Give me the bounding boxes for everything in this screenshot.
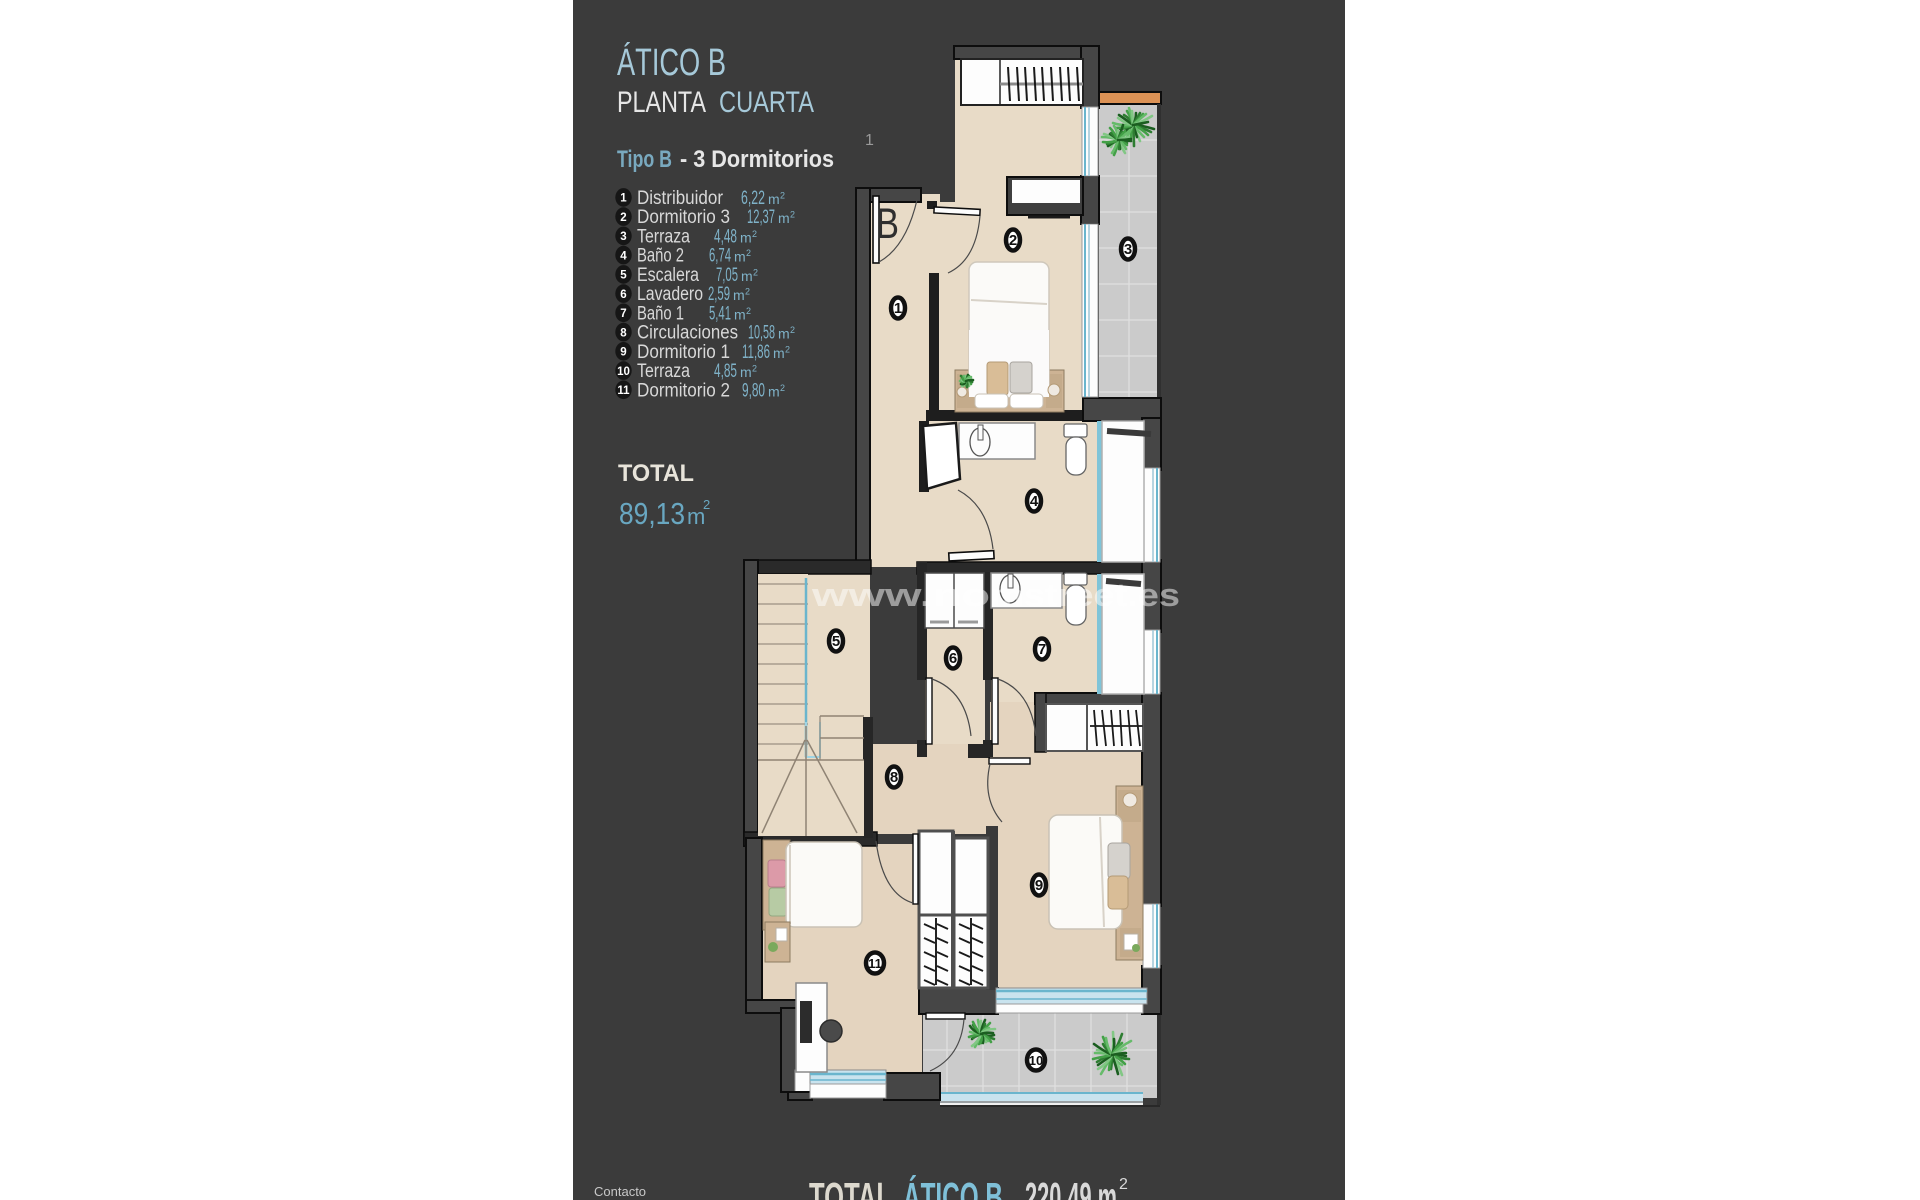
svg-text:11: 11	[617, 385, 630, 397]
svg-text:m: m	[733, 287, 745, 303]
svg-text:m: m	[768, 383, 780, 399]
svg-text:TOTAL: TOTAL	[618, 460, 694, 487]
svg-text:Contacto: Contacto	[594, 1184, 646, 1199]
svg-text:6: 6	[949, 650, 957, 667]
svg-text:m: m	[778, 210, 790, 226]
svg-text:4: 4	[1030, 493, 1039, 510]
svg-text:5: 5	[832, 633, 840, 650]
svg-text:6: 6	[620, 289, 626, 301]
svg-text:7: 7	[1038, 641, 1046, 658]
svg-text:B: B	[876, 200, 899, 248]
svg-text:m: m	[778, 326, 790, 342]
svg-text:Distribuidor: Distribuidor	[637, 188, 724, 209]
svg-text:3: 3	[620, 231, 626, 243]
svg-text:CUARTA: CUARTA	[719, 86, 814, 119]
svg-text:Circulaciones: Circulaciones	[637, 323, 738, 344]
svg-text:2: 2	[1119, 1176, 1128, 1193]
svg-text:2: 2	[780, 383, 785, 393]
svg-text:- 3 Dormitorios: - 3 Dormitorios	[680, 146, 834, 173]
svg-text:2: 2	[1009, 232, 1017, 249]
svg-text:2: 2	[746, 306, 751, 316]
svg-text:m: m	[740, 229, 752, 245]
svg-text:m: m	[773, 345, 785, 361]
svg-text:2: 2	[753, 267, 758, 277]
svg-text:www.no: www.no	[811, 577, 990, 613]
svg-text:220,49 m: 220,49 m	[1025, 1174, 1117, 1200]
svg-text:mstreet.es: mstreet.es	[990, 577, 1180, 613]
svg-text:2: 2	[785, 344, 790, 354]
svg-text:5: 5	[620, 270, 627, 282]
svg-text:10: 10	[617, 366, 630, 378]
svg-text:Tipo B: Tipo B	[617, 146, 672, 173]
svg-text:4: 4	[620, 250, 627, 262]
svg-text:Terraza: Terraza	[637, 226, 690, 247]
svg-text:TOTAL: TOTAL	[809, 1174, 892, 1200]
svg-text:2: 2	[790, 210, 795, 220]
svg-text:m: m	[741, 268, 753, 284]
svg-text:8: 8	[620, 327, 627, 339]
svg-text:1: 1	[865, 132, 874, 149]
svg-text:Lavadero: Lavadero	[637, 284, 703, 305]
svg-text:1: 1	[894, 300, 902, 317]
svg-text:2: 2	[703, 497, 710, 512]
svg-text:Dormitorio 2: Dormitorio 2	[637, 380, 730, 401]
svg-text:9: 9	[1035, 877, 1043, 894]
svg-text:11,86: 11,86	[742, 341, 770, 363]
svg-text:PLANTA: PLANTA	[617, 86, 706, 119]
svg-text:5,41: 5,41	[709, 302, 731, 324]
svg-text:ÁTICO B: ÁTICO B	[617, 41, 726, 84]
svg-text:2: 2	[780, 190, 785, 200]
svg-text:ÁTICO B: ÁTICO B	[903, 1174, 1003, 1200]
svg-text:Escalera: Escalera	[637, 265, 699, 286]
svg-text:m: m	[740, 364, 752, 380]
svg-text:2: 2	[752, 364, 757, 374]
svg-text:2: 2	[790, 325, 795, 335]
svg-text:m: m	[734, 249, 746, 265]
svg-text:9: 9	[620, 347, 626, 359]
svg-text:89,13: 89,13	[619, 496, 685, 531]
svg-text:9,80: 9,80	[742, 379, 765, 401]
svg-text:Terraza: Terraza	[637, 361, 690, 382]
svg-text:Baño 2: Baño 2	[637, 246, 684, 267]
svg-text:4,85: 4,85	[714, 360, 737, 382]
svg-text:Baño 1: Baño 1	[637, 303, 684, 324]
svg-text:3: 3	[1124, 241, 1132, 258]
svg-text:12,37: 12,37	[747, 206, 775, 228]
svg-text:10: 10	[1029, 1053, 1043, 1068]
svg-text:m: m	[768, 191, 780, 207]
svg-text:7: 7	[620, 308, 626, 320]
svg-text:2: 2	[746, 248, 751, 258]
svg-text:2: 2	[752, 229, 757, 239]
svg-text:11: 11	[868, 956, 882, 971]
svg-text:m: m	[734, 306, 746, 322]
svg-text:8: 8	[890, 769, 898, 786]
svg-text:2: 2	[745, 287, 750, 297]
svg-text:2: 2	[620, 212, 626, 224]
svg-text:1: 1	[620, 193, 627, 205]
